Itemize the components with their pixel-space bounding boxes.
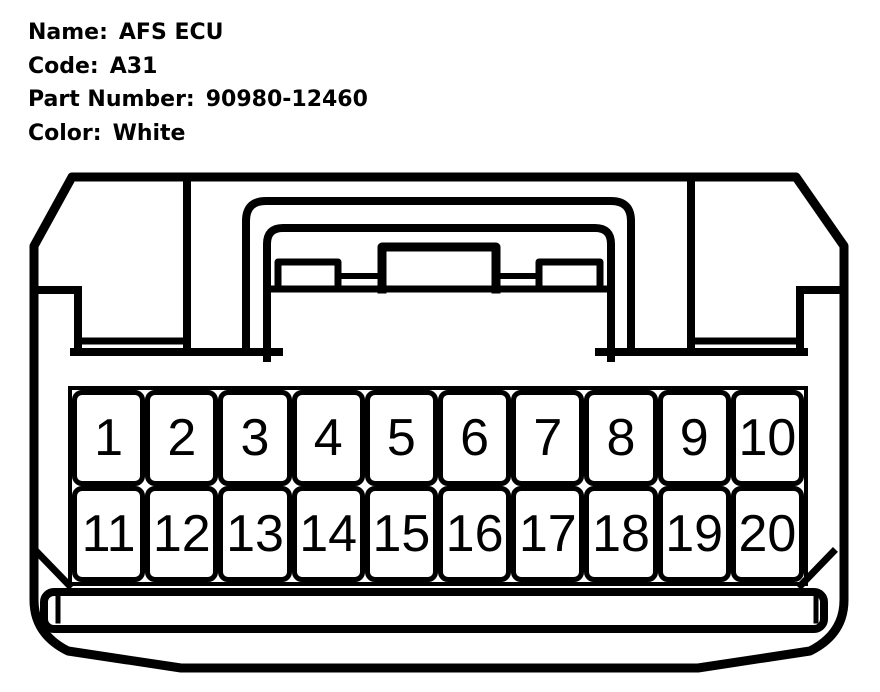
latch-tab-left — [278, 262, 338, 289]
pin-4: 4 — [292, 390, 365, 486]
pin-17: 17 — [511, 486, 584, 582]
pin-6: 6 — [438, 390, 511, 486]
pin-11: 11 — [72, 486, 145, 582]
pin-3: 3 — [218, 390, 291, 486]
pin-19: 19 — [658, 486, 731, 582]
bottom-chamfer-left — [37, 552, 69, 585]
pin-20: 20 — [731, 486, 804, 582]
pin-5: 5 — [365, 390, 438, 486]
bottom-ridge — [44, 592, 824, 629]
pin-8: 8 — [584, 390, 657, 486]
latch-bridge — [246, 201, 631, 352]
pin-7: 7 — [511, 390, 584, 486]
pin-1: 1 — [72, 390, 145, 486]
latch-tab-right — [539, 262, 600, 289]
connector-pinout-page: Name:AFS ECU Code:A31 Part Number:90980-… — [0, 0, 880, 692]
latch-center-key — [382, 247, 496, 289]
pin-10: 10 — [731, 390, 804, 486]
pin-14: 14 — [292, 486, 365, 582]
pin-18: 18 — [584, 486, 657, 582]
connector-drawing — [0, 0, 880, 692]
pin-13: 13 — [218, 486, 291, 582]
pin-2: 2 — [145, 390, 218, 486]
pin-15: 15 — [365, 486, 438, 582]
pin-16: 16 — [438, 486, 511, 582]
pin-grid: 1 2 3 4 5 6 7 8 9 10 11 12 13 14 15 16 1… — [68, 386, 808, 586]
pin-9: 9 — [658, 390, 731, 486]
pin-12: 12 — [145, 486, 218, 582]
